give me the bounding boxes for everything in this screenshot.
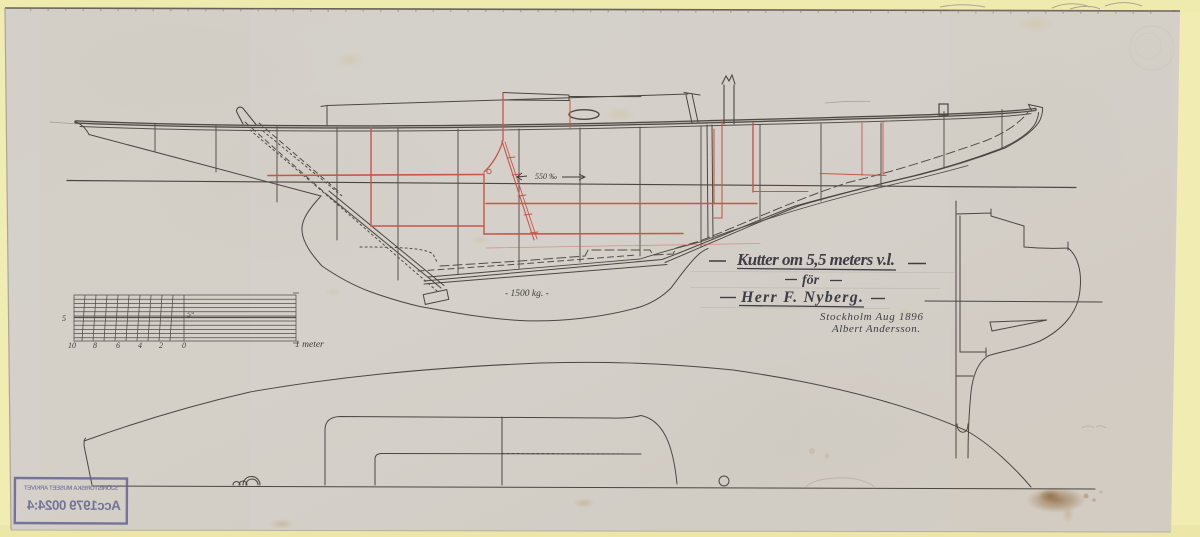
svg-text:SJÖHISTORISKA MUSEET ARKIVET: SJÖHISTORISKA MUSEET ARKIVET <box>24 485 118 492</box>
svg-text:Herr F. Nyberg.: Herr F. Nyberg. <box>740 289 863 306</box>
svg-text:1 meter: 1 meter <box>295 340 324 350</box>
svg-text:4: 4 <box>138 341 142 350</box>
svg-text:2: 2 <box>159 341 163 350</box>
svg-text:5°: 5° <box>187 310 195 319</box>
svg-text:Kutter om 5,5 meters v.l.: Kutter om 5,5 meters v.l. <box>736 250 895 269</box>
svg-text:Stockholm Aug 1896: Stockholm Aug 1896 <box>820 311 924 323</box>
svg-text:10: 10 <box>68 341 76 350</box>
svg-text:8: 8 <box>93 341 97 350</box>
svg-text:för: för <box>802 273 820 288</box>
svg-text:Acc1979 0024:4: Acc1979 0024:4 <box>26 498 121 513</box>
svg-text:6: 6 <box>116 341 120 350</box>
svg-text:550 ‰: 550 ‰ <box>535 172 557 181</box>
svg-text:Albert Andersson.: Albert Andersson. <box>831 323 920 335</box>
svg-text:- 1500 kg. -: - 1500 kg. - <box>505 289 549 299</box>
svg-text:5: 5 <box>62 314 66 323</box>
svg-text:0: 0 <box>182 341 186 350</box>
